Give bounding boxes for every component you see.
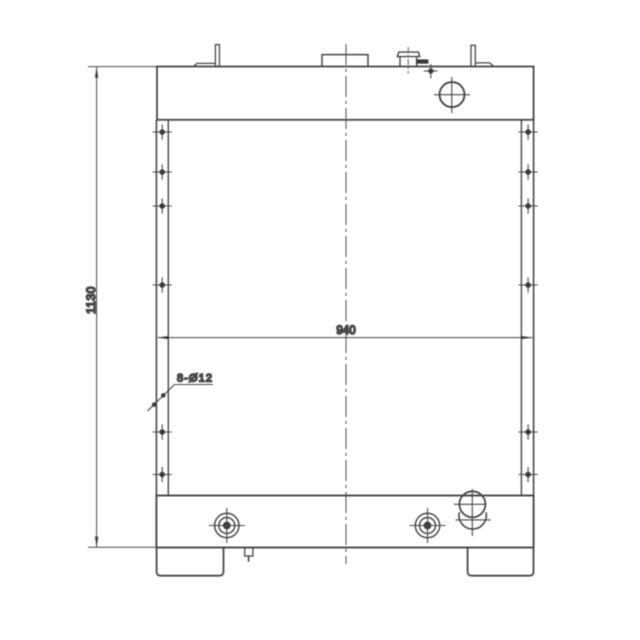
svg-text:940: 940: [336, 325, 355, 337]
svg-text:1130: 1130: [84, 286, 98, 314]
svg-text:8-Ø12: 8-Ø12: [177, 373, 213, 385]
